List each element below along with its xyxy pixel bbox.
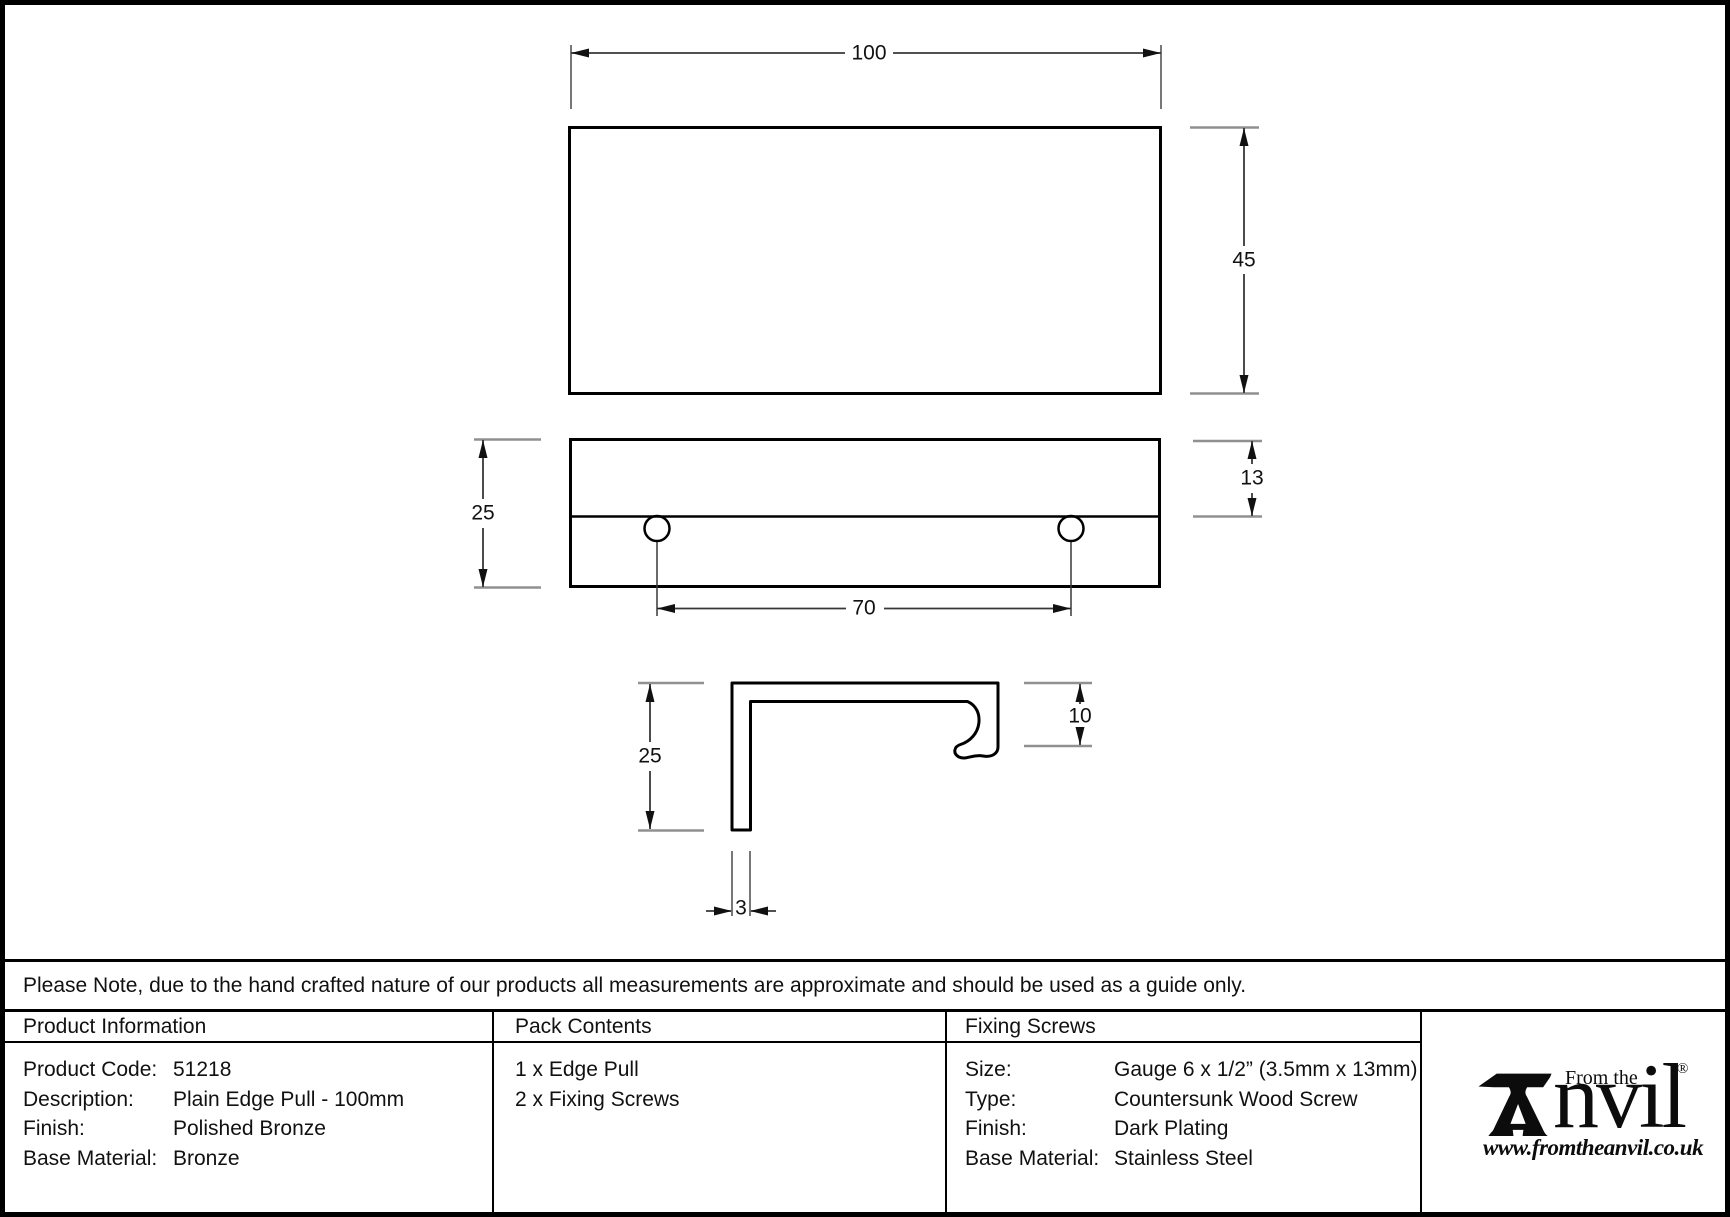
table-row: Description: Plain Edge Pull - 100mm	[23, 1085, 404, 1115]
field-value: 51218	[173, 1055, 231, 1085]
list-item: 2 x Fixing Screws	[515, 1085, 680, 1115]
dim-label-front-height: 25	[471, 502, 494, 525]
arrowhead	[1053, 604, 1071, 613]
anvil-icon	[1473, 1066, 1557, 1136]
product-information-section: Product Code: 51218 Description: Plain E…	[23, 1055, 404, 1173]
field-value: Bronze	[173, 1144, 240, 1174]
arrowhead	[1240, 128, 1249, 146]
arrowhead	[1143, 49, 1161, 58]
page-border-bottom	[0, 1212, 1730, 1217]
table-row: Base Material: Bronze	[23, 1144, 404, 1174]
dim-label-hole-spacing: 70	[852, 597, 875, 620]
pack-contents-section: 1 x Edge Pull 2 x Fixing Screws	[515, 1055, 680, 1114]
arrowhead	[646, 811, 655, 829]
page-border-right	[1725, 0, 1730, 1217]
arrowhead	[1248, 498, 1257, 516]
registered-trademark-icon: ®	[1677, 1061, 1688, 1078]
arrowhead	[479, 440, 488, 458]
screw-hole-right	[1059, 516, 1084, 541]
field-value: Gauge 6 x 1/2” (3.5mm x 13mm)	[1114, 1055, 1417, 1085]
brand-logo: From the nvil ® www.fromtheanvil.co.uk	[1425, 1011, 1725, 1211]
field-label: Base Material:	[23, 1144, 173, 1174]
page-border-top	[0, 0, 1730, 5]
page-border-left	[0, 0, 5, 1217]
arrowhead	[479, 569, 488, 587]
dim-label-depth: 45	[1232, 249, 1255, 272]
note-top-rule	[0, 959, 1730, 962]
arrowhead	[657, 604, 675, 613]
arrowhead	[1076, 727, 1085, 745]
dim-label-thickness: 3	[735, 897, 747, 920]
field-value: Countersunk Wood Screw	[1114, 1085, 1358, 1115]
table-row: Finish: Dark Plating	[965, 1114, 1417, 1144]
arrowhead	[1240, 375, 1249, 393]
arrowhead	[1076, 684, 1085, 702]
header-product-information: Product Information	[23, 1014, 206, 1040]
field-value: Dark Plating	[1114, 1114, 1228, 1144]
table-header-rule	[0, 1041, 1421, 1043]
dim-label-width: 100	[851, 42, 886, 65]
dim-label-lip: 13	[1240, 467, 1263, 490]
field-label: Finish:	[965, 1114, 1114, 1144]
fixing-screws-section: Size: Gauge 6 x 1/2” (3.5mm x 13mm) Type…	[965, 1055, 1417, 1173]
field-label: Type:	[965, 1085, 1114, 1115]
header-fixing-screws: Fixing Screws	[965, 1014, 1096, 1040]
table-divider-2	[945, 1009, 947, 1217]
field-label: Size:	[965, 1055, 1114, 1085]
arrowhead	[714, 907, 732, 916]
field-value: Stainless Steel	[1114, 1144, 1253, 1174]
field-label: Description:	[23, 1085, 173, 1115]
logo-wordmark: nvil	[1553, 1050, 1684, 1142]
screw-hole-left	[645, 516, 670, 541]
table-row: Product Code: 51218	[23, 1055, 404, 1085]
field-label: Finish:	[23, 1114, 173, 1144]
field-value: Plain Edge Pull - 100mm	[173, 1085, 404, 1115]
side-profile-outline	[732, 683, 998, 830]
technical-drawing: 100 45 25 13 70 25 10	[0, 0, 1730, 959]
table-row: Finish: Polished Bronze	[23, 1114, 404, 1144]
arrowhead	[1248, 441, 1257, 459]
top-view-outline	[570, 128, 1161, 394]
field-value: Polished Bronze	[173, 1114, 326, 1144]
logo-website: www.fromtheanvil.co.uk	[1483, 1135, 1703, 1161]
dim-label-hook: 10	[1068, 705, 1091, 728]
field-label: Base Material:	[965, 1144, 1114, 1174]
header-pack-contents: Pack Contents	[515, 1014, 652, 1040]
list-item: 1 x Edge Pull	[515, 1055, 680, 1085]
spec-sheet-page: { "drawing": { "top_view": { "width_labe…	[0, 0, 1730, 1217]
field-label: Product Code:	[23, 1055, 173, 1085]
table-row: Type: Countersunk Wood Screw	[965, 1085, 1417, 1115]
arrowhead	[646, 684, 655, 702]
table-divider-3	[1420, 1009, 1422, 1217]
disclaimer-note: Please Note, due to the hand crafted nat…	[23, 973, 1246, 999]
dim-label-side-height: 25	[638, 745, 661, 768]
table-row: Size: Gauge 6 x 1/2” (3.5mm x 13mm)	[965, 1055, 1417, 1085]
arrowhead	[571, 49, 589, 58]
arrowhead	[750, 907, 768, 916]
table-divider-1	[492, 1009, 494, 1217]
table-row: Base Material: Stainless Steel	[965, 1144, 1417, 1174]
